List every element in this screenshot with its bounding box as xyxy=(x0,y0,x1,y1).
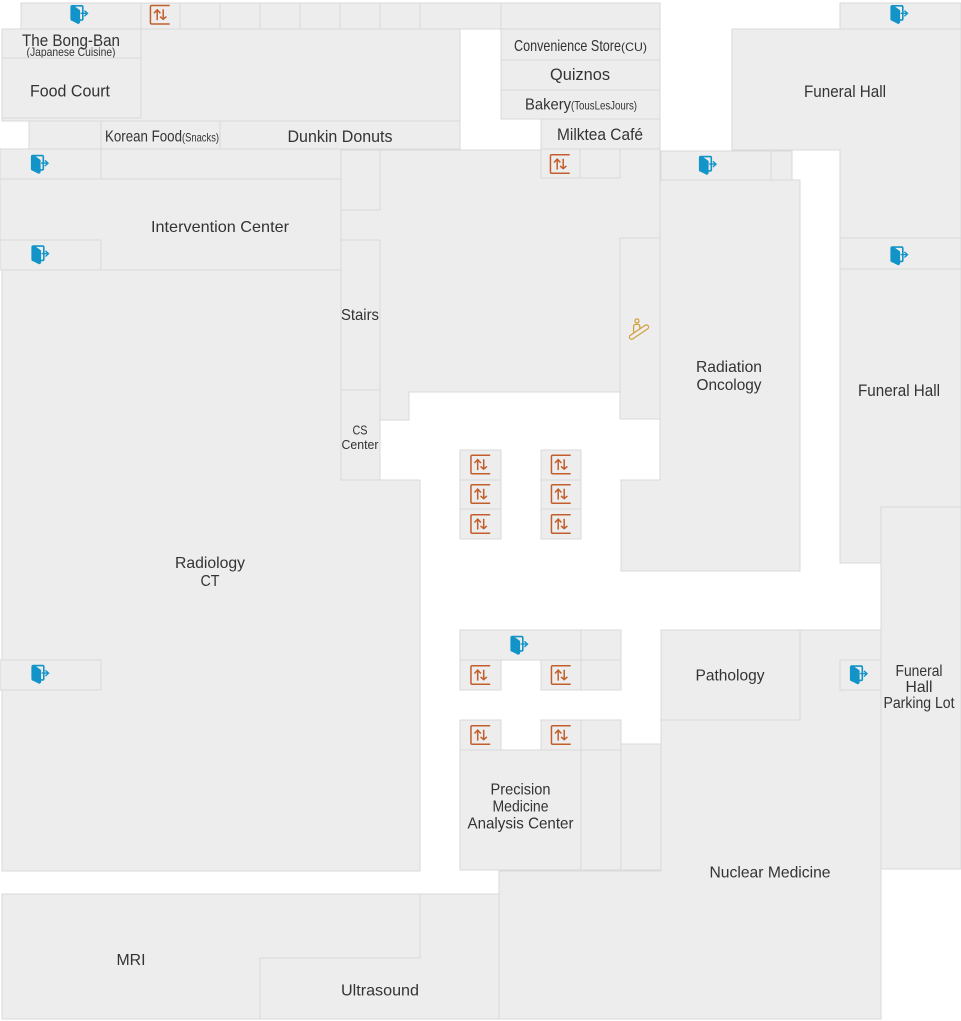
svg-text:Ultrasound: Ultrasound xyxy=(341,983,419,1000)
svg-text:Korean Food: Korean Food xyxy=(105,128,182,145)
svg-text:(CU): (CU) xyxy=(621,40,647,54)
svg-text:Bakery: Bakery xyxy=(525,97,571,114)
svg-text:CT: CT xyxy=(201,573,220,590)
svg-text:MRI: MRI xyxy=(117,952,146,969)
svg-text:Pathology: Pathology xyxy=(696,668,765,685)
svg-text:Funeral: Funeral xyxy=(896,663,943,680)
svg-text:CS: CS xyxy=(353,423,368,438)
svg-text:Milktea Café: Milktea Café xyxy=(557,125,643,144)
svg-text:Food Court: Food Court xyxy=(30,82,110,101)
svg-text:Precision: Precision xyxy=(491,782,551,799)
svg-text:(TousLesJours): (TousLesJours) xyxy=(571,99,637,113)
svg-text:Stairs: Stairs xyxy=(341,307,379,324)
svg-text:Quiznos: Quiznos xyxy=(550,65,610,84)
svg-text:Radiology: Radiology xyxy=(175,555,245,572)
svg-text:Convenience Store: Convenience Store xyxy=(514,38,621,55)
svg-text:Nuclear Medicine: Nuclear Medicine xyxy=(710,865,831,882)
svg-text:Parking Lot: Parking Lot xyxy=(884,695,955,712)
svg-text:Hall: Hall xyxy=(906,679,933,696)
svg-text:(Japanese Cuisine): (Japanese Cuisine) xyxy=(27,45,116,59)
svg-text:Center: Center xyxy=(342,437,380,452)
svg-text:Funeral Hall: Funeral Hall xyxy=(804,82,886,101)
svg-text:Funeral Hall: Funeral Hall xyxy=(858,381,940,400)
svg-text:Medicine: Medicine xyxy=(493,799,549,816)
svg-text:Dunkin Donuts: Dunkin Donuts xyxy=(288,127,393,146)
svg-text:Radiation: Radiation xyxy=(696,359,762,376)
svg-text:Oncology: Oncology xyxy=(697,377,762,394)
svg-text:(Snacks): (Snacks) xyxy=(182,130,219,144)
svg-text:Intervention Center: Intervention Center xyxy=(151,219,290,236)
svg-text:Analysis Center: Analysis Center xyxy=(468,816,575,833)
